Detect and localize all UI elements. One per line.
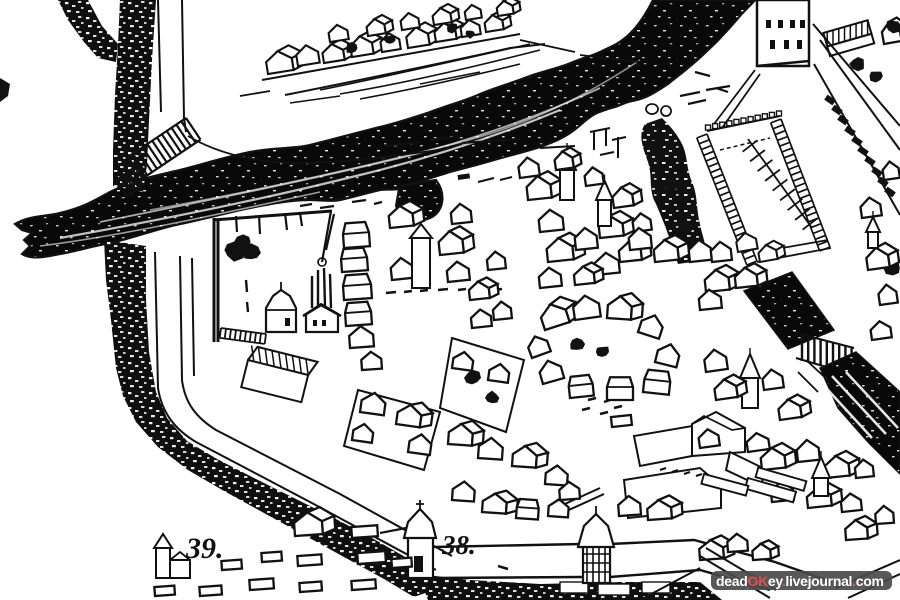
svg-text:38.: 38. — [441, 530, 476, 560]
svg-text:deadOKey.livejournal.com: deadOKey.livejournal.com — [716, 573, 884, 589]
